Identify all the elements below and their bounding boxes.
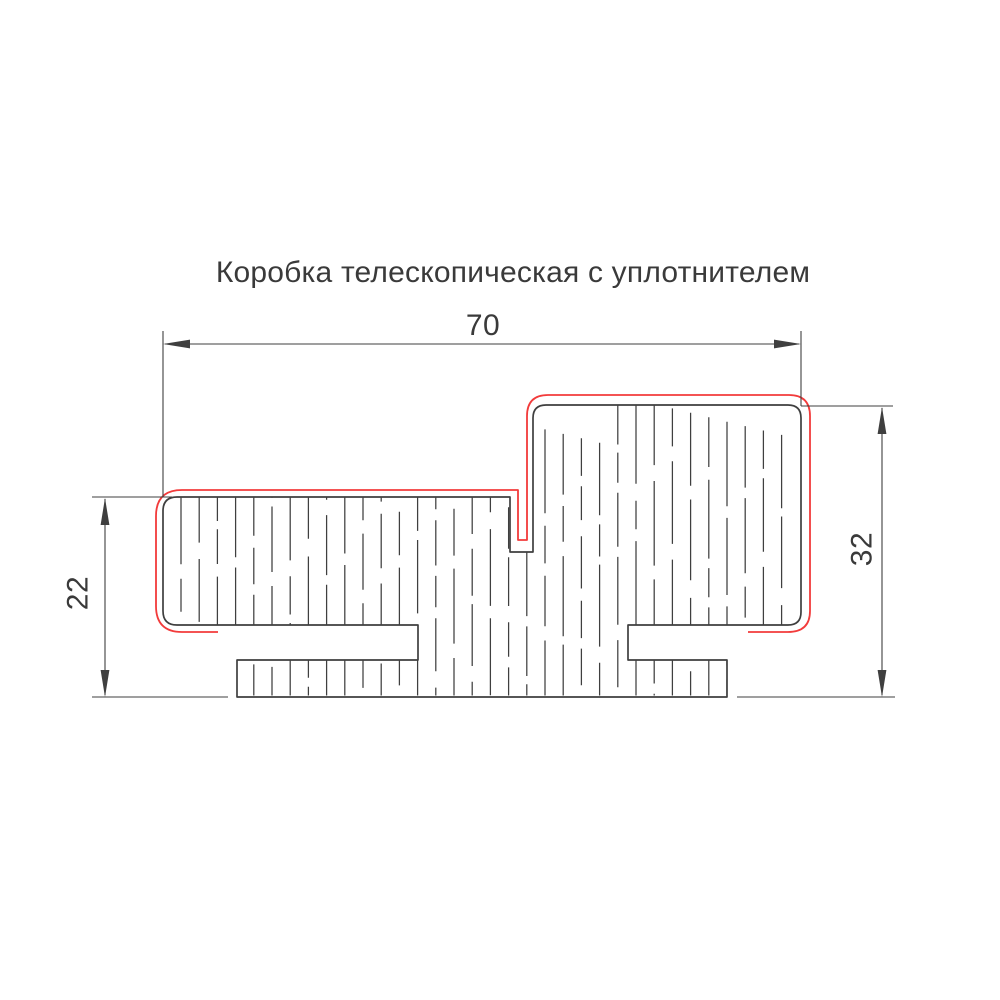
drawing-title: Коробка телескопическая с уплотнителем — [216, 256, 810, 289]
dimension-width-label: 70 — [466, 309, 500, 342]
drawing-background — [0, 0, 1000, 1000]
dimension-left-thickness-label: 22 — [62, 576, 95, 610]
technical-drawing: Коробка телескопическая с уплотнителем 7… — [0, 0, 1000, 1000]
dimension-right-thickness-label: 32 — [846, 532, 879, 566]
drawing-canvas: Коробка телескопическая с уплотнителем 7… — [0, 0, 1000, 1000]
